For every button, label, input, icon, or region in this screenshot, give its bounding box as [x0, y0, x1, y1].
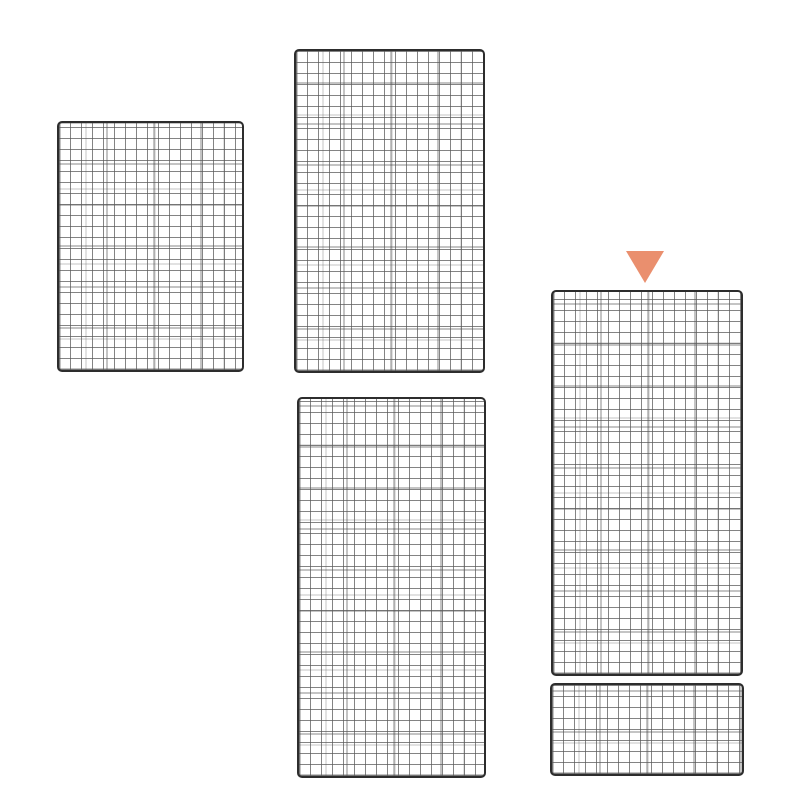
selection-arrow-icon — [626, 251, 664, 283]
product-image-canvas — [0, 0, 800, 800]
grid-panel-right — [551, 290, 743, 676]
grid-panel-bottom-right — [550, 683, 744, 776]
grid-panel-top-left — [57, 121, 244, 372]
grid-panel-top-middle — [294, 49, 485, 373]
grid-panel-bottom-middle — [297, 397, 486, 778]
